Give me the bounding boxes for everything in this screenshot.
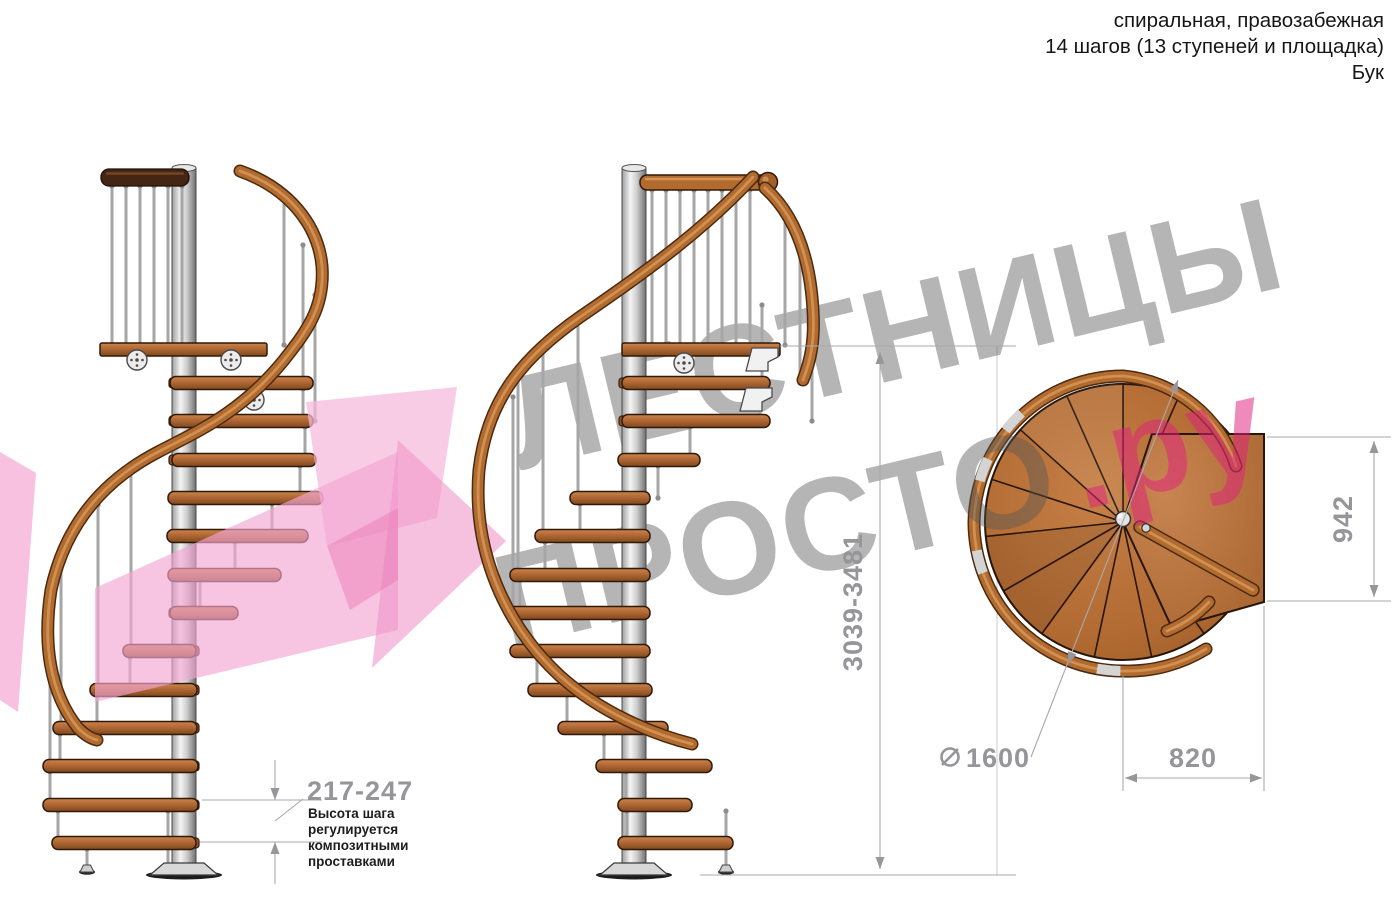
staircase-drawing: ЛЕСТНИЦЫ ПРОСТО .ру 217-247 [0,0,1400,914]
column-flange [150,863,218,875]
tread [505,607,650,620]
dim-step-height: 217-247 [307,776,413,806]
dim-total-height: 3039-3481 [838,533,868,671]
landing-rail [101,169,189,186]
watermark-arrow-shapes [0,387,506,712]
tread [618,454,700,467]
dim-landing-width: 942 [1328,495,1358,543]
tread [535,530,650,543]
tread [43,799,198,812]
tread [172,454,316,467]
rail-sleeve [1097,669,1120,671]
tread [170,415,313,428]
tread [52,837,196,850]
tread [43,760,198,773]
tread [618,837,733,850]
tread [622,415,770,428]
tread [570,492,650,505]
dim-landing-offset: 820 [1169,743,1217,773]
tread [596,760,712,773]
landing-platform [100,343,267,356]
column-flange [600,863,668,875]
tread [618,799,692,812]
tread [170,377,313,390]
arrow-left-edge [0,452,36,712]
tread [510,569,650,582]
dim-diameter: 1600 [966,743,1030,773]
technical-drawing-page: спиральная, правозабежная 14 шагов (13 с… [0,0,1400,914]
step-height-note: Высота шага регулируется композитными пр… [308,806,440,870]
